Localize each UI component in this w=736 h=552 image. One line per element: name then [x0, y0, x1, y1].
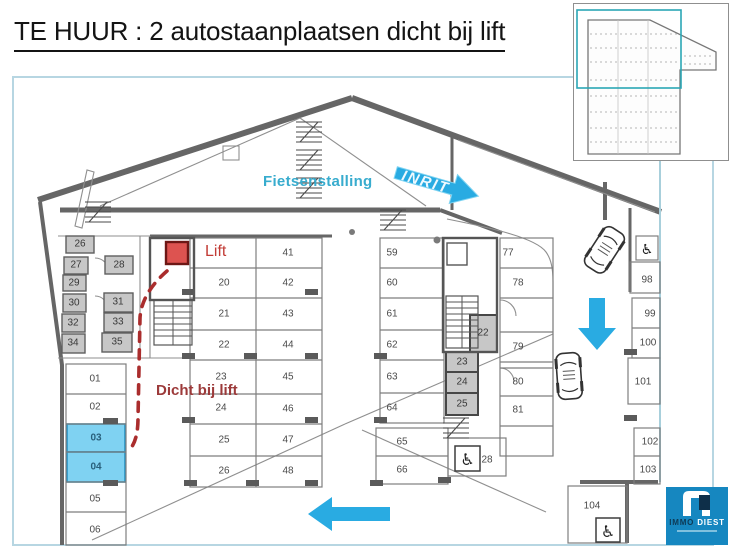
- lift-shaft: [166, 242, 188, 264]
- car-icon: [554, 352, 584, 400]
- left-arrow: [308, 497, 390, 531]
- car-icon: [581, 223, 629, 276]
- logo-immo: IMMO: [669, 518, 694, 527]
- stair-cores: [150, 238, 497, 352]
- down-arrow: [578, 298, 616, 350]
- wheelchair-icons: ♿ ♿ ♿: [455, 242, 653, 542]
- wheelchair-icon: ♿: [460, 450, 474, 469]
- highlighted-space-03: [67, 424, 125, 452]
- overview-inset-map: [573, 3, 729, 161]
- wheelchair-icon: ♿: [641, 242, 654, 258]
- highlighted-space-04: [67, 452, 125, 482]
- logo-wordmark: IMMO DIEST: [669, 518, 725, 527]
- immo-diest-logo-icon: [679, 487, 715, 517]
- wheelchair-icon: ♿: [601, 522, 615, 541]
- overview-inset-drawing: [574, 4, 726, 158]
- logo-diest: DIEST: [697, 518, 725, 527]
- dicht-bij-lift-label: Dicht bij lift: [156, 382, 238, 399]
- immo-diest-logo: IMMO DIEST: [666, 487, 728, 545]
- listing-slide: TE HUUR : 2 autostaanplaatsen dicht bij …: [0, 0, 736, 552]
- fietsenstalling-label: Fietsenstalling: [263, 173, 373, 190]
- inrit-arrow: INRIT: [392, 158, 483, 211]
- logo-tagline-rule: [677, 530, 717, 532]
- storage-cells: [62, 236, 497, 415]
- lift-label: Lift: [205, 243, 226, 261]
